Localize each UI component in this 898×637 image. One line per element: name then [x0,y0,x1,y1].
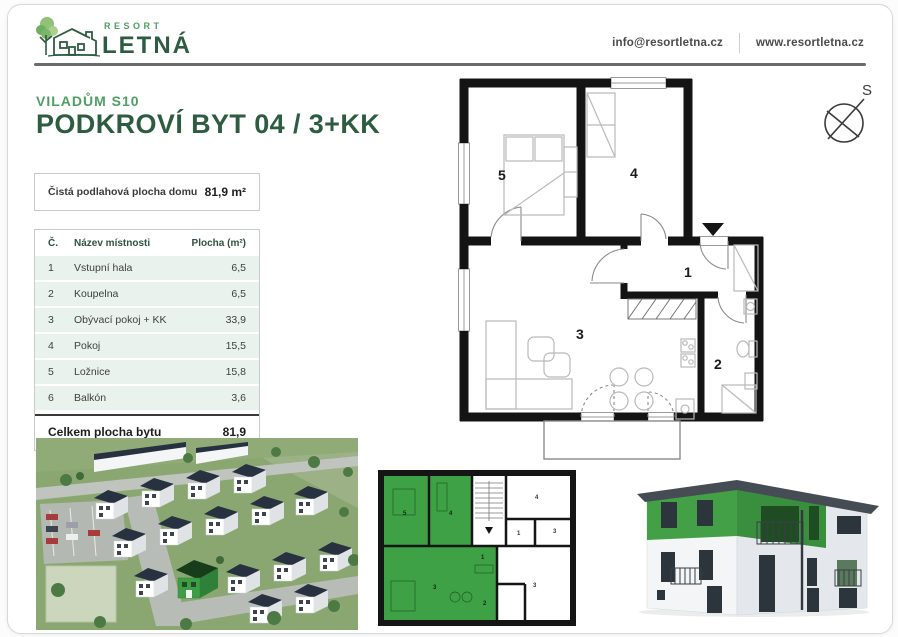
page: RESORT LETNÁ info@resortletna.cz www.res… [0,0,898,637]
room-label-3: 3 [576,326,584,342]
row-number: 6 [35,392,74,404]
resort-letna-logo: RESORT LETNÁ [34,11,214,63]
floor-overview-plan: 5 4 1 3 2 4 1 3 3 [377,468,577,628]
row-number: 2 [35,288,74,300]
room-label-1: 1 [684,264,692,280]
brand-name-text: LETNÁ [102,31,192,59]
col-area: Plocha (m²) [192,238,259,249]
entrance-arrow-icon [702,223,724,236]
document-card: RESORT LETNÁ info@resortletna.cz www.res… [7,4,893,634]
row-number: 5 [35,366,74,378]
page-title: PODKROVÍ BYT 04 / 3+KK [36,109,380,140]
total-label: Celkem plocha bytu [35,425,223,439]
col-number: Č. [35,238,74,249]
table-row: 4 Pokoj 15,5 [35,334,259,358]
row-name: Obývací pokoj + KK [74,314,226,326]
table-header-row: Č. Název místnosti Plocha (m²) [35,230,259,256]
table-row: 2 Koupelna 6,5 [35,282,259,306]
table-row: 1 Vstupní hala 6,5 [35,256,259,280]
row-area: 3,6 [231,392,259,404]
row-area: 33,9 [226,314,259,326]
main-floor-plan: 5 4 1 3 2 [456,77,766,462]
room-table: Č. Název místnosti Plocha (m²) 1 Vstupní… [34,229,260,451]
room-label-2: 2 [714,356,722,372]
total-value: 81,9 [223,425,259,439]
row-name: Vstupní hala [74,262,231,274]
row-name: Pokoj [74,340,226,352]
email-link[interactable]: info@resortletna.cz [612,37,723,49]
compass-icon: S [814,79,878,151]
resort-aerial-render [36,438,358,630]
row-area: 6,5 [231,262,259,274]
room-label-5: 5 [498,167,506,183]
row-name: Balkón [74,392,231,404]
row-number: 3 [35,314,74,326]
header-rule [34,63,866,66]
row-area: 15,8 [226,366,259,378]
row-name: Koupelna [74,288,231,300]
room-label-4: 4 [630,165,638,181]
balcony-outline [544,421,680,459]
row-area: 15,5 [226,340,259,352]
compass-north-label: S [862,82,872,99]
row-number: 4 [35,340,74,352]
brand-top-text: RESORT [104,21,163,31]
kitchen-counter [628,299,696,319]
building-exterior-render [609,460,893,620]
table-row: 6 Balkón 3,6 [35,386,259,410]
table-row: 5 Ložnice 15,8 [35,360,259,384]
row-number: 1 [35,262,74,274]
header-links: info@resortletna.cz www.resortletna.cz [612,33,864,53]
row-name: Ložnice [74,366,226,378]
row-area: 6,5 [231,288,259,300]
header-divider [739,33,740,53]
col-name: Název místnosti [74,238,192,249]
website-link[interactable]: www.resortletna.cz [756,37,864,49]
building-subtitle: VILADŮM S10 [36,93,140,109]
table-row: 3 Obývací pokoj + KK 33,9 [35,308,259,332]
net-area-box: Čistá podlahová plocha domu 81,9 m² [34,173,260,211]
net-area-value: 81,9 m² [205,185,246,199]
net-area-label: Čistá podlahová plocha domu [48,186,197,198]
